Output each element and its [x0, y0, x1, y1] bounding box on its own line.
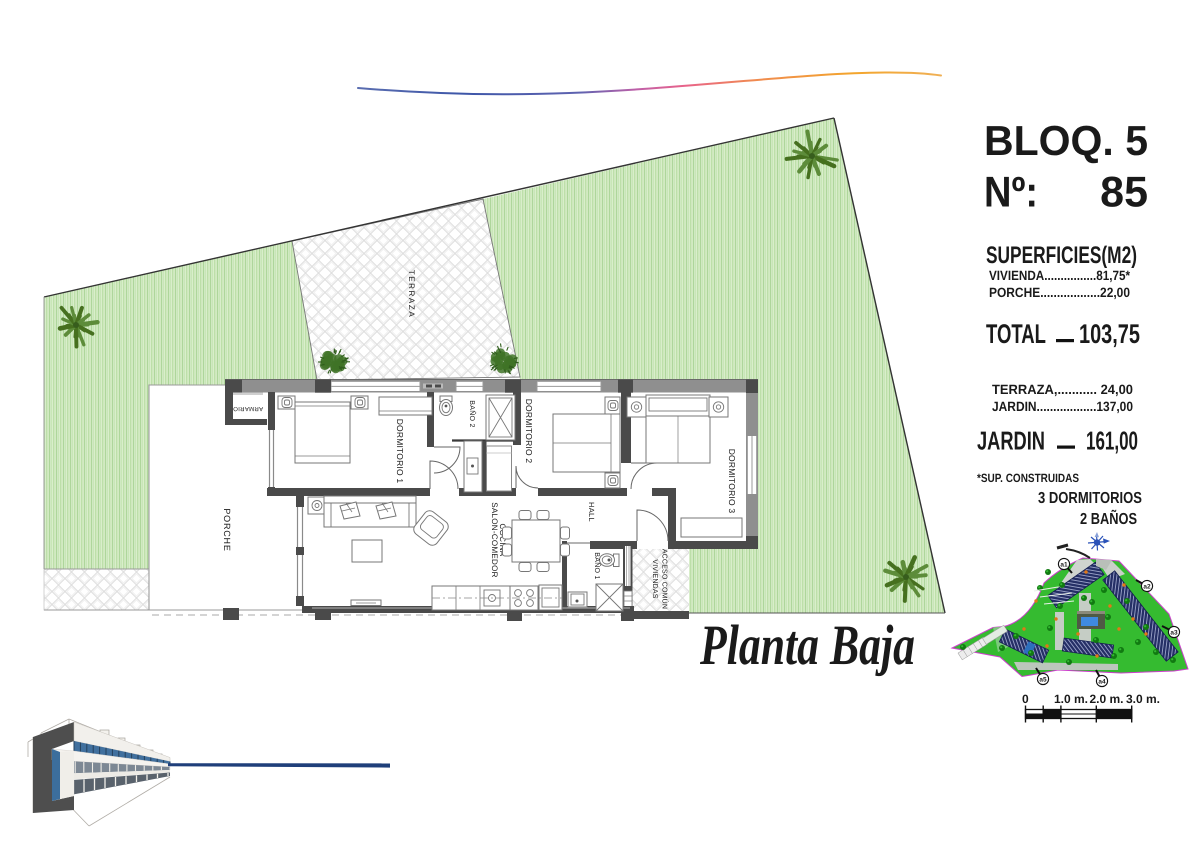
svg-text:TERRAZA,........... 24,00: TERRAZA,........... 24,00 [992, 382, 1133, 397]
svg-text:a2: a2 [1143, 583, 1151, 590]
svg-text:Planta Baja: Planta Baja [699, 614, 915, 677]
svg-text:a4: a4 [1098, 678, 1106, 685]
svg-text:ACCESO COMÚN: ACCESO COMÚN [661, 549, 670, 609]
svg-text:TERRAZA: TERRAZA [407, 270, 416, 319]
svg-text:a5: a5 [1039, 676, 1047, 683]
svg-text:103,75: 103,75 [1079, 319, 1140, 349]
svg-text:2.0 m.: 2.0 m. [1090, 692, 1124, 706]
svg-text:BAÑO 2: BAÑO 2 [468, 400, 477, 427]
svg-text:SALON-COMEDOR: SALON-COMEDOR [490, 502, 499, 577]
svg-text:1.0 m.: 1.0 m. [1054, 692, 1088, 706]
svg-text:BLOQ. 5: BLOQ. 5 [984, 117, 1148, 164]
svg-text:2 BAÑOS: 2 BAÑOS [1080, 509, 1137, 528]
svg-text:TOTAL: TOTAL [986, 319, 1046, 349]
svg-text:JARDIN..................137,00: JARDIN..................137,00 [992, 399, 1133, 414]
svg-text:BAÑO 1: BAÑO 1 [593, 552, 602, 579]
svg-text:a1: a1 [1060, 561, 1068, 568]
svg-text:PORCHE..................22,00: PORCHE..................22,00 [989, 285, 1130, 300]
svg-text:*SUP. CONSTRUIDAS: *SUP. CONSTRUIDAS [977, 471, 1079, 485]
svg-text:VIVIENDAS: VIVIENDAS [651, 559, 658, 598]
svg-text:PORCHE: PORCHE [222, 508, 232, 551]
svg-text:SUPERFICIES(M2): SUPERFICIES(M2) [986, 242, 1137, 269]
svg-text:DORMITORIO 2: DORMITORIO 2 [524, 399, 534, 464]
svg-text:3 DORMITORIOS: 3 DORMITORIOS [1038, 490, 1142, 507]
svg-text:a3: a3 [1170, 629, 1178, 636]
svg-text:VIVIENDA................81,75*: VIVIENDA................81,75* [989, 268, 1131, 283]
svg-text:DORMITORIO 1: DORMITORIO 1 [395, 419, 405, 484]
svg-text:Nº:: Nº: [984, 169, 1038, 217]
svg-text:HALL: HALL [587, 502, 596, 522]
svg-text:161,00: 161,00 [1086, 426, 1138, 456]
svg-text:3.0 m.: 3.0 m. [1126, 692, 1160, 706]
svg-text:JARDIN: JARDIN [977, 426, 1045, 456]
svg-text:DORMITORIO 3: DORMITORIO 3 [727, 449, 737, 514]
svg-text:ARMARIO: ARMARIO [233, 405, 263, 412]
svg-text:85: 85 [1100, 169, 1148, 217]
svg-text:0: 0 [1022, 692, 1029, 706]
